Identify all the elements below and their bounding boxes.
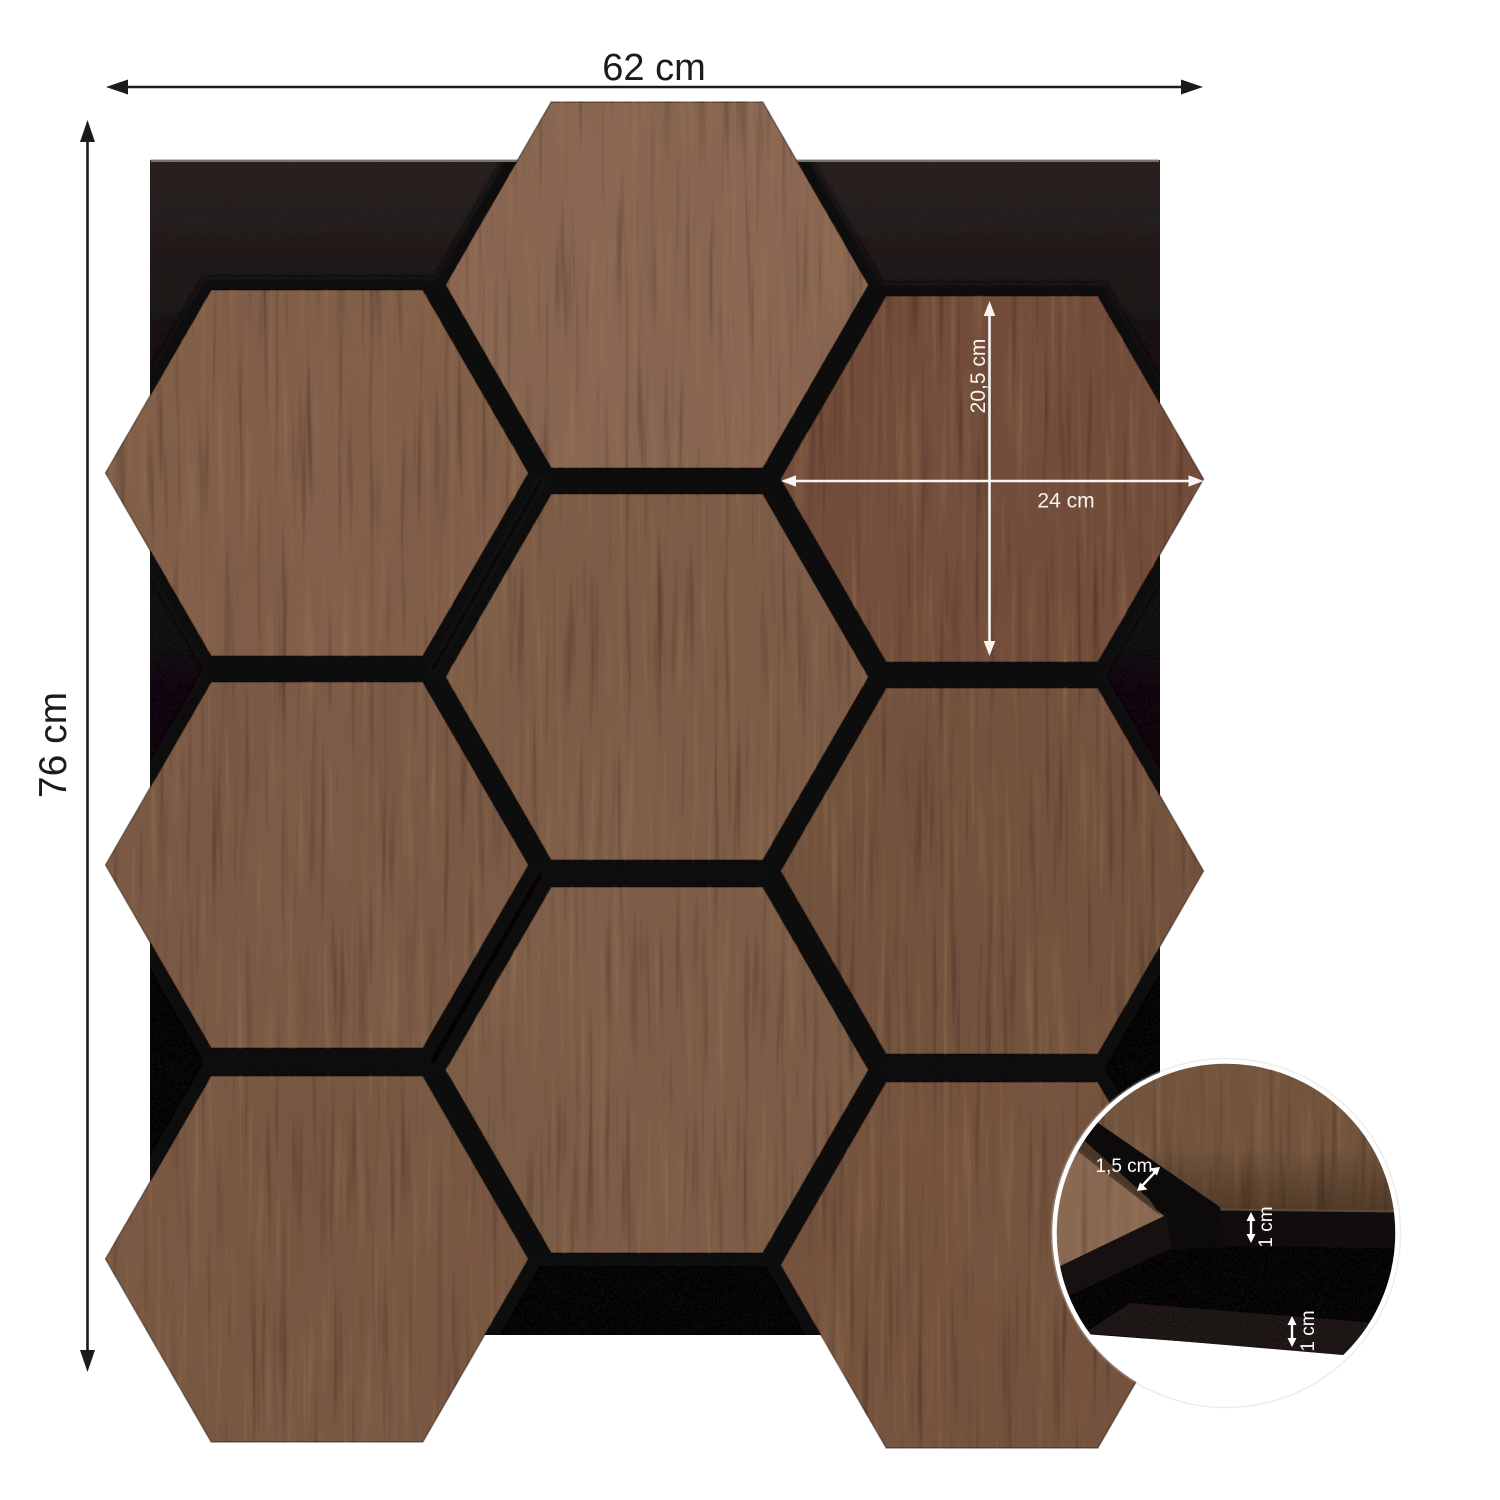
svg-text:62 cm: 62 cm bbox=[602, 47, 705, 89]
svg-text:20,5 cm: 20,5 cm bbox=[967, 339, 990, 414]
svg-text:76 cm: 76 cm bbox=[32, 692, 75, 798]
svg-text:1 cm: 1 cm bbox=[1256, 1206, 1277, 1247]
svg-text:24 cm: 24 cm bbox=[1037, 490, 1094, 513]
svg-text:1 cm: 1 cm bbox=[1298, 1310, 1319, 1351]
svg-text:1,5 cm: 1,5 cm bbox=[1095, 1156, 1152, 1177]
